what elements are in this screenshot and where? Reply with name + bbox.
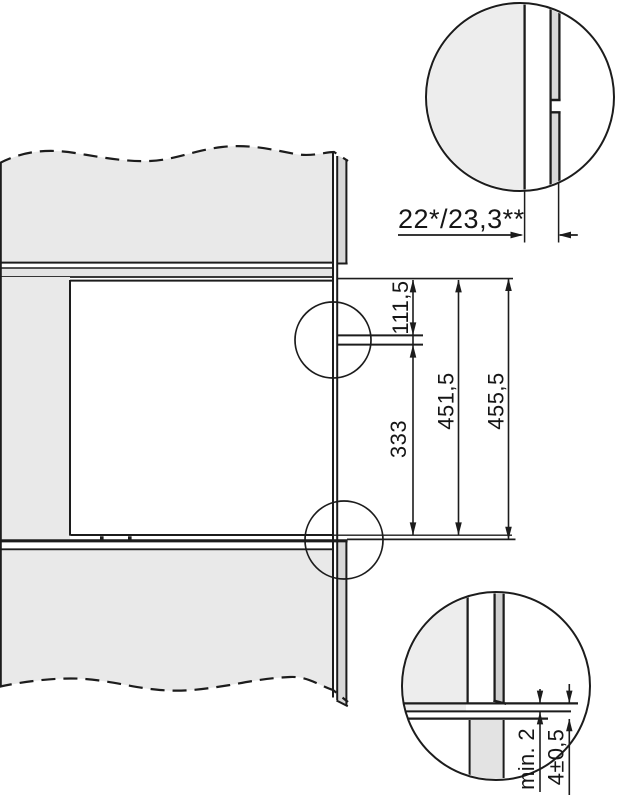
upper-front-strip [338, 156, 347, 264]
lower-cabinet-panel [0, 551, 333, 691]
detail-view-top: 22*/23,3** [398, 0, 614, 243]
detail-top-arrow-left [558, 232, 571, 239]
detail-view-bottom: min. 2 4±0,5 [398, 588, 590, 795]
drawing-canvas: 111,5 333 451,5 455,5 22*/23,3** [0, 0, 619, 800]
dim-label-111-5: 111,5 [388, 280, 413, 334]
upper-cabinet-panel [0, 146, 333, 263]
main-section-view [0, 146, 423, 706]
dim-label-min-clearance: min. 2 [514, 728, 539, 790]
installation-drawing: 111,5 333 451,5 455,5 22*/23,3** [0, 0, 619, 800]
left-side-wall [0, 277, 70, 539]
dim-label-333: 333 [386, 420, 411, 458]
detail-bottom-strip-core [496, 592, 502, 701]
dim-overlap-down-arrow [566, 691, 572, 704]
dim-label-455-5: 455,5 [484, 372, 509, 430]
dim-label-451-5: 451,5 [434, 372, 459, 430]
top-shelf-board [0, 269, 332, 277]
dim-label-front-overlap: 4±0,5 [544, 729, 569, 785]
main-dimensions: 111,5 333 451,5 455,5 [332, 278, 516, 539]
lower-front-strip [338, 543, 347, 705]
dim-min2-down-arrow [537, 691, 543, 704]
detail-bottom-panel-section [398, 588, 466, 711]
dim-label-front-depth: 22*/23,3** [398, 204, 525, 234]
detail-bottom-lower-front [470, 720, 505, 780]
detail-top-panel-section [424, 0, 524, 196]
detail-top-strip-upper [552, 0, 559, 100]
